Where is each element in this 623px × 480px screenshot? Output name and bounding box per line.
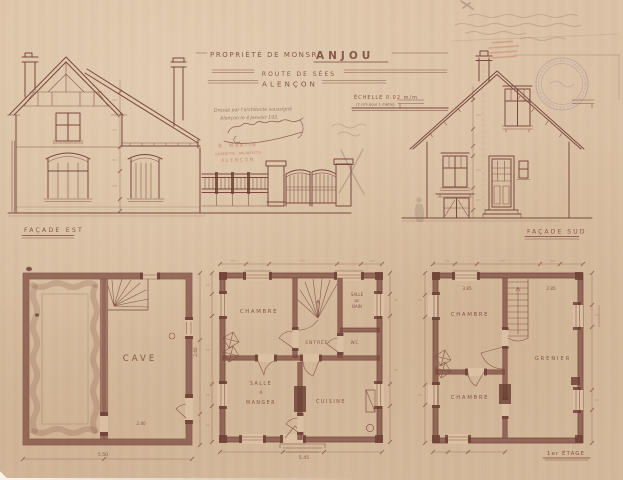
room-label-wc: W.C.	[351, 340, 360, 345]
door-steps	[481, 210, 523, 218]
pencil-guideline	[452, 34, 618, 41]
drafted-note-line2: Alençon le 4 Janvier 193.	[219, 115, 279, 122]
svg-text:DE: DE	[354, 299, 360, 303]
round-seal	[536, 58, 588, 110]
elevation-right	[398, 51, 594, 222]
dim-left: 3.85	[462, 286, 472, 291]
drafted-note-line1: Dressé par l'architecte soussigné	[214, 105, 292, 113]
window-ground-left	[44, 153, 92, 202]
svg-text:SALLE: SALLE	[351, 292, 364, 297]
scale-subline: (2 c/m pour 1 mètre)	[356, 103, 395, 107]
svg-text:5.50: 5.50	[98, 452, 108, 458]
stair	[508, 279, 528, 341]
left-wall	[16, 115, 122, 213]
right-elevation-caption: FAÇADE SUD	[527, 229, 587, 236]
chimney-breast	[499, 384, 511, 404]
small-red-stamp	[488, 41, 519, 58]
signature	[224, 118, 303, 143]
gate	[286, 170, 336, 206]
scanned-architectural-drawing: PROPRIÉTÉ DE MONSR ANJOU ROUTE DE SÉES A…	[0, 0, 623, 480]
dim-bottom: 5.50	[21, 452, 194, 461]
fence-gate	[202, 159, 353, 206]
svg-text:MANGER: MANGER	[246, 400, 276, 406]
downpipe	[12, 141, 15, 212]
top-opening	[140, 271, 160, 280]
chimney-breast	[294, 386, 306, 412]
window-ground-right	[127, 155, 164, 202]
dim-right: 2.60	[193, 271, 202, 447]
vent-circle	[169, 333, 175, 339]
stair	[108, 279, 148, 310]
plan-basement: CAVE 2.40 5.50 2.60	[21, 267, 202, 461]
front-door	[481, 156, 523, 218]
plan-ground: CHAMBRE SALLE DE BAIN ENTRÉE W.C. SALLE …	[206, 261, 398, 461]
cellar-doors	[444, 198, 469, 218]
street-line: ROUTE DE SÉES	[262, 70, 336, 78]
upper-window	[502, 86, 533, 132]
room-label-entree: ENTRÉE	[305, 338, 328, 346]
svg-text:2.60: 2.60	[193, 347, 198, 357]
dimension-chain	[471, 86, 481, 218]
svg-text:À: À	[260, 390, 263, 395]
property-prefix: PROPRIÉTÉ DE MONSR	[210, 50, 318, 59]
room-label-salle-a-manger: SALLE À MANGER	[246, 381, 276, 406]
drawing-sheet: PROPRIÉTÉ DE MONSR ANJOU ROUTE DE SÉES A…	[0, 0, 623, 480]
architect-stamp: R. MARTIN GÉOMÈTRE · ARCHITECTE ALENÇON	[215, 142, 263, 163]
dim-chains	[418, 261, 599, 454]
svg-text:BAIN: BAIN	[352, 304, 362, 309]
stamp-line2: GÉOMÈTRE · ARCHITECTE	[215, 150, 262, 157]
stair	[298, 279, 337, 330]
svg-text:1er ÉTAGE: 1er ÉTAGE	[547, 449, 585, 457]
scan-corner-curl	[0, 469, 16, 480]
plan-caption: 1er ÉTAGE	[543, 449, 590, 460]
room-label-cave: CAVE	[123, 354, 157, 364]
svg-text:SALLE: SALLE	[250, 381, 272, 387]
plan-first: CHAMBRE GRENIER CHAMBRE 3.85 2.85 1er ÉT…	[418, 261, 599, 460]
captions: FAÇADE EST FAÇADE SUD	[22, 227, 587, 239]
kitchen-fixtures	[366, 390, 375, 432]
room-label-grenier: GRENIER	[535, 356, 571, 362]
property-name: ANJOU	[316, 50, 374, 62]
dim-width: 5.45	[299, 455, 309, 461]
city-line: ALENÇON	[262, 80, 318, 89]
narrow-window	[517, 161, 530, 180]
dimension-chain	[112, 80, 122, 213]
room-label-chambre-bottom: CHAMBRE	[451, 395, 489, 401]
ink-blot	[26, 267, 32, 271]
stamp-line1: R. MARTIN	[218, 142, 257, 149]
gate-pillar-left	[266, 161, 286, 206]
room-label-cuisine: CUISINE	[316, 399, 346, 405]
chimney-left	[22, 53, 38, 97]
chimney-rear	[171, 58, 186, 126]
earth-hatch	[33, 283, 97, 433]
wall-nib	[571, 377, 580, 385]
cellar-awning	[436, 194, 474, 197]
dim-inner: 2.40	[136, 421, 146, 426]
gate-pillar-right	[334, 159, 353, 206]
dim-right: 2.85	[546, 286, 556, 291]
pencil-checkmark	[461, 1, 473, 9]
window-right	[185, 317, 193, 339]
left-elevation-caption: FAÇADE EST	[24, 227, 84, 234]
stamp-line3: ALENÇON	[221, 157, 255, 163]
interior-walls	[435, 278, 509, 438]
room-label-chambre-top: CHAMBRE	[451, 312, 489, 318]
left-window	[440, 153, 470, 191]
door-right	[176, 394, 193, 424]
room-label-chambre: CHAMBRE	[240, 309, 278, 315]
room-label-salle-de-bain: SALLE DE BAIN	[351, 292, 364, 309]
gable-window	[53, 113, 83, 143]
